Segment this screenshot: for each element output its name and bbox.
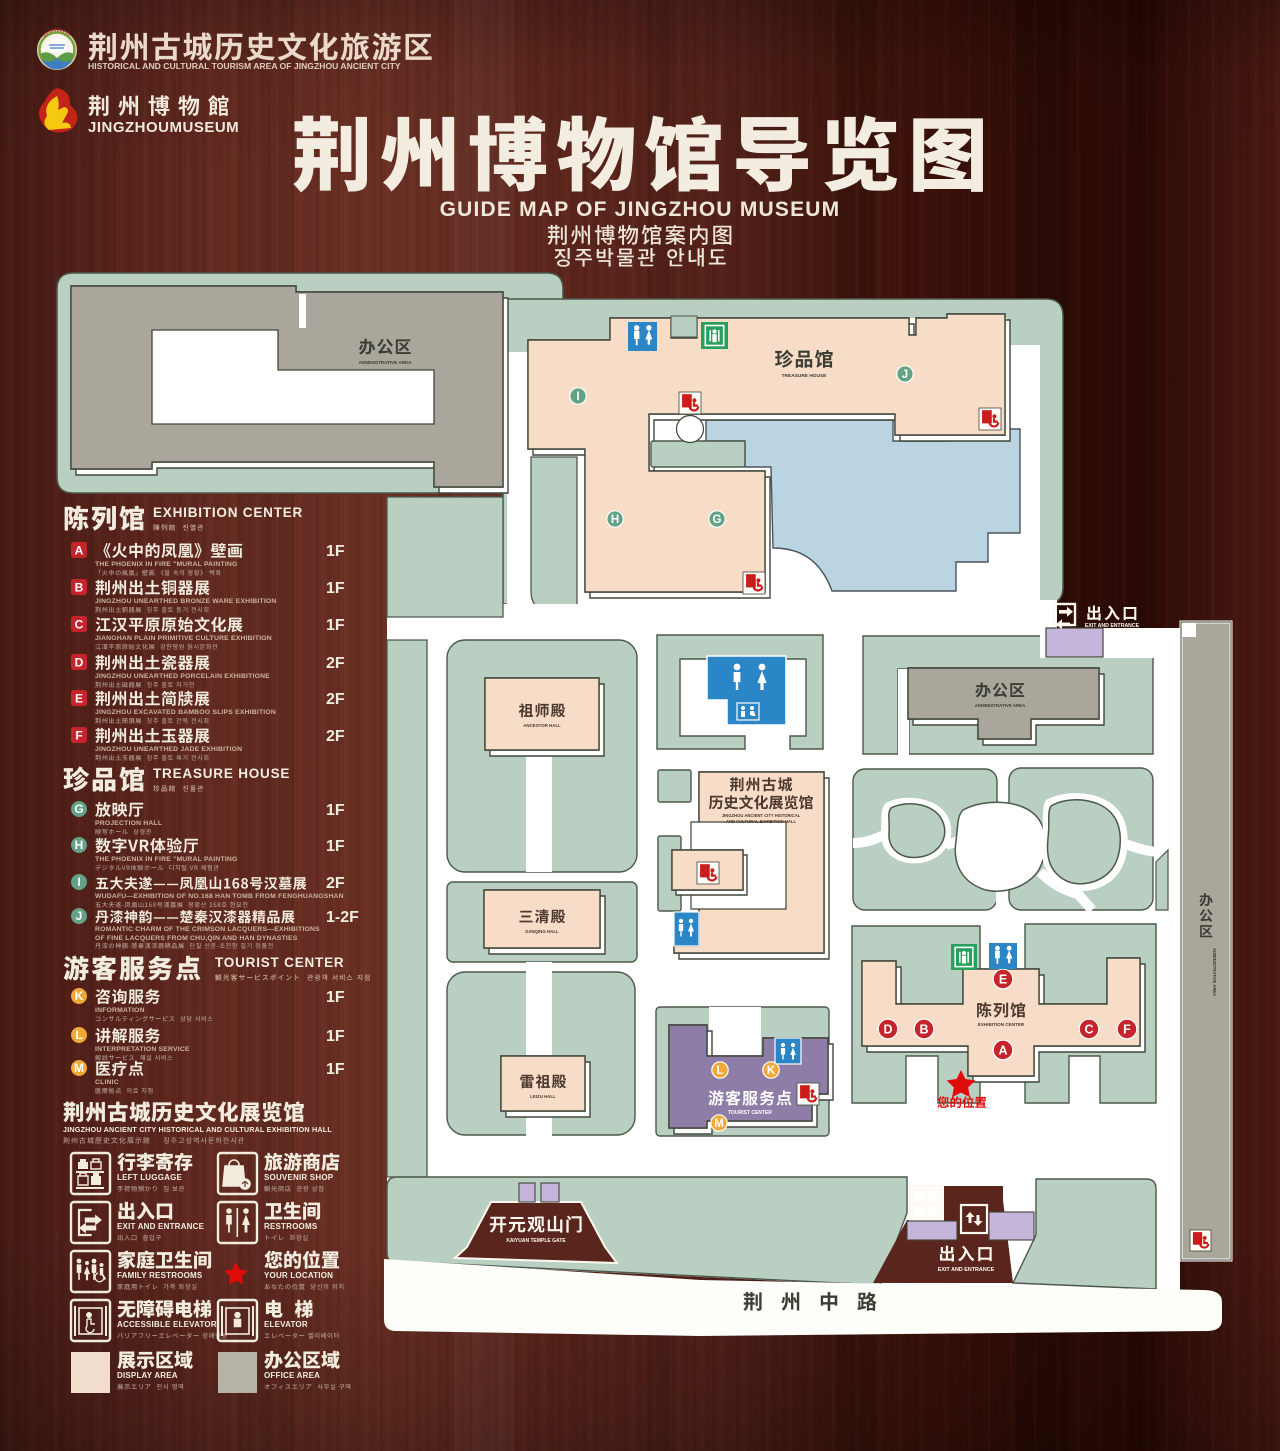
svg-text:JINGZHOU EXCAVATED BAMBOO SLIP: JINGZHOU EXCAVATED BAMBOO SLIPS EXHIBITI…	[95, 709, 276, 716]
svg-text:ADMINISTRATIVE AREA: ADMINISTRATIVE AREA	[975, 703, 1026, 708]
svg-text:LEFT LUGGAGE: LEFT LUGGAGE	[117, 1173, 183, 1182]
svg-text:WUDAFU—EXHIBITION OF NO.168 HA: WUDAFU—EXHIBITION OF NO.168 HAN TOMB FRO…	[95, 893, 344, 900]
svg-text:YOUR LOCATION: YOUR LOCATION	[264, 1271, 333, 1280]
svg-text:2F: 2F	[326, 655, 345, 672]
svg-text:SANQING HALL: SANQING HALL	[525, 929, 559, 934]
svg-text:THE PHOENIX IN FIRE "MURAL PAI: THE PHOENIX IN FIRE "MURAL PAINTING	[95, 561, 238, 568]
svg-text:1F: 1F	[326, 543, 345, 560]
svg-text:2F: 2F	[326, 728, 345, 745]
svg-text:SOUVENIR SHOP: SOUVENIR SHOP	[264, 1173, 334, 1182]
svg-text:H: H	[611, 514, 619, 526]
svg-text:CLINIC: CLINIC	[95, 1079, 119, 1086]
svg-text:INTERPRETATION SERVICE: INTERPRETATION SERVICE	[95, 1046, 190, 1053]
svg-text:PROJECTION HALL: PROJECTION HALL	[95, 820, 162, 827]
svg-text:F: F	[75, 729, 82, 743]
svg-text:C: C	[75, 618, 84, 632]
svg-text:THE PHOENIX IN FIRE "MURAL PAI: THE PHOENIX IN FIRE "MURAL PAINTING	[95, 856, 238, 863]
svg-text:AND CULTURAL EXHIBITION HALL: AND CULTURAL EXHIBITION HALL	[726, 819, 797, 824]
svg-text:A: A	[75, 544, 84, 558]
svg-text:OFFICE AREA: OFFICE AREA	[264, 1371, 320, 1380]
svg-text:TREASURE HOUSE: TREASURE HOUSE	[782, 373, 828, 379]
svg-text:INFORMATION: INFORMATION	[95, 1007, 145, 1014]
svg-text:1F: 1F	[326, 1061, 345, 1078]
svg-text:M: M	[714, 1118, 724, 1130]
svg-text:2F: 2F	[326, 691, 345, 708]
svg-text:EXHIBITION CENTER: EXHIBITION CENTER	[153, 505, 303, 520]
svg-text:TOURIST CENTER: TOURIST CENTER	[728, 1110, 772, 1116]
svg-text:JINGZHOU UNEARTHED PORCELAIN E: JINGZHOU UNEARTHED PORCELAIN EXHIBITIONE	[95, 673, 270, 680]
svg-text:KAIYUAN TEMPLE GATE: KAIYUAN TEMPLE GATE	[506, 1238, 566, 1244]
svg-text:JIANGHAN PLAIN PRIMITIVE CULTU: JIANGHAN PLAIN PRIMITIVE CULTURE EXHIBIT…	[95, 635, 272, 642]
svg-text:B: B	[75, 581, 84, 595]
svg-text:JINGZHOU ANCIENT CITY HISTORIC: JINGZHOU ANCIENT CITY HISTORICAL	[722, 813, 801, 818]
svg-text:EXIT AND ENTRANCE: EXIT AND ENTRANCE	[117, 1222, 205, 1231]
svg-text:L: L	[716, 1065, 723, 1077]
svg-text:L: L	[75, 1028, 82, 1042]
svg-text:ADMINISTRATIVE AREA: ADMINISTRATIVE AREA	[359, 360, 413, 365]
svg-text:EXHIBITION CENTER: EXHIBITION CENTER	[978, 1022, 1025, 1027]
svg-text:I: I	[77, 875, 80, 889]
svg-text:OF FINE LACQUERS FROM CHU,QIN: OF FINE LACQUERS FROM CHU,QIN AND HAN DY…	[95, 935, 298, 942]
svg-text:TOURIST CENTER: TOURIST CENTER	[215, 955, 344, 970]
svg-text:F: F	[1123, 1023, 1131, 1037]
svg-text:JINGZHOU ANCIENT CITY HISTORIC: JINGZHOU ANCIENT CITY HISTORICAL AND CUL…	[63, 1125, 332, 1134]
svg-text:JINGZHOU UNEARTHED JADE EXHIBI: JINGZHOU UNEARTHED JADE EXHIBITION	[95, 746, 242, 753]
svg-text:1-2F: 1-2F	[326, 909, 359, 926]
svg-text:1F: 1F	[326, 617, 345, 634]
svg-text:ACCESSIBLE ELEVATOR: ACCESSIBLE ELEVATOR	[117, 1320, 217, 1329]
svg-text:1F: 1F	[326, 838, 345, 855]
svg-text:D: D	[75, 656, 84, 670]
svg-text:J: J	[76, 909, 83, 923]
svg-text:A: A	[998, 1044, 1007, 1058]
svg-text:GUIDE MAP OF JINGZHOU MUSEUM: GUIDE MAP OF JINGZHOU MUSEUM	[440, 198, 841, 221]
svg-text:ELEVATOR: ELEVATOR	[264, 1320, 308, 1329]
svg-text:EXIT AND ENTRANCE: EXIT AND ENTRANCE	[1085, 623, 1140, 629]
svg-text:K: K	[75, 989, 84, 1003]
svg-text:C: C	[1084, 1023, 1093, 1037]
svg-text:1F: 1F	[326, 802, 345, 819]
svg-text:I: I	[576, 391, 579, 403]
svg-text:FAMILY RESTROOMS: FAMILY RESTROOMS	[117, 1271, 203, 1280]
svg-text:M: M	[74, 1061, 84, 1075]
svg-text:E: E	[999, 973, 1007, 987]
svg-text:2F: 2F	[326, 875, 345, 892]
svg-text:ROMANTIC CHARM OF THE CRIMSON: ROMANTIC CHARM OF THE CRIMSON LACQUERS—E…	[95, 926, 320, 933]
svg-text:JINGZHOU UNEARTHED BRONZE WARE: JINGZHOU UNEARTHED BRONZE WARE EXHIBITIO…	[95, 598, 277, 605]
svg-text:E: E	[75, 692, 83, 706]
svg-text:HISTORICAL AND CULTURAL TOURIS: HISTORICAL AND CULTURAL TOURISM AREA OF …	[88, 61, 401, 71]
svg-text:ANCESTOR HALL: ANCESTOR HALL	[523, 723, 561, 728]
svg-text:TREASURE HOUSE: TREASURE HOUSE	[153, 766, 290, 781]
svg-text:LEIZU HALL: LEIZU HALL	[530, 1094, 556, 1099]
svg-text:EXIT AND ENTRANCE: EXIT AND ENTRANCE	[938, 1267, 995, 1273]
svg-text:ADMINISTRATIVE AREA: ADMINISTRATIVE AREA	[1212, 948, 1217, 996]
svg-text:G: G	[74, 802, 83, 816]
svg-text:K: K	[767, 1065, 776, 1077]
svg-text:G: G	[713, 514, 722, 526]
svg-text:J: J	[902, 369, 908, 381]
svg-text:1F: 1F	[326, 580, 345, 597]
svg-text:RESTROOMS: RESTROOMS	[264, 1222, 318, 1231]
svg-text:D: D	[883, 1023, 892, 1037]
svg-text:H: H	[75, 838, 84, 852]
svg-text:1F: 1F	[326, 1028, 345, 1045]
svg-text:JINGZHOUMUSEUM: JINGZHOUMUSEUM	[88, 119, 239, 136]
svg-text:DISPLAY AREA: DISPLAY AREA	[117, 1371, 178, 1380]
svg-text:B: B	[919, 1023, 928, 1037]
svg-text:1F: 1F	[326, 989, 345, 1006]
